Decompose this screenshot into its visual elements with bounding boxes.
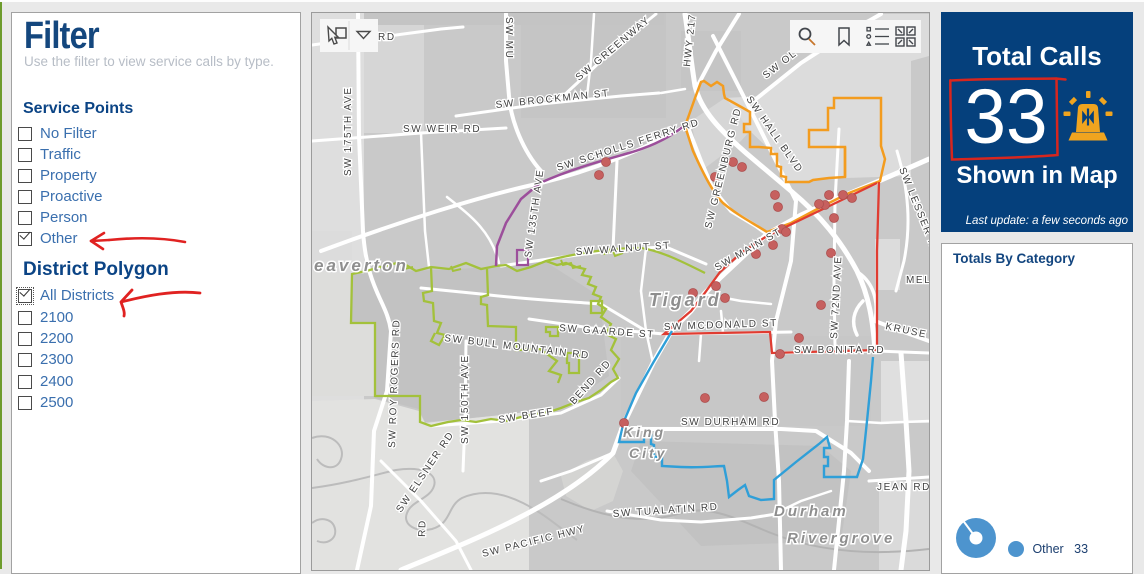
svg-text:King: King	[623, 424, 666, 440]
svg-text:RD: RD	[417, 519, 429, 537]
svg-text:SW MU: SW MU	[503, 17, 514, 59]
svg-text:City: City	[629, 445, 667, 461]
svg-text:SW WEIR RD: SW WEIR RD	[403, 124, 481, 135]
svg-text:RD: RD	[378, 32, 396, 43]
svg-text:Rivergrove: Rivergrove	[787, 530, 895, 547]
svg-text:SW 175TH AVE: SW 175TH AVE	[343, 86, 354, 176]
svg-text:SW BONITA RD: SW BONITA RD	[794, 345, 885, 356]
svg-text:SW DURHAM RD: SW DURHAM RD	[681, 417, 780, 428]
svg-text:SW 150TH AVE: SW 150TH AVE	[460, 354, 471, 444]
svg-text:JEAN RD: JEAN RD	[877, 482, 930, 493]
svg-text:eaverton: eaverton	[314, 256, 409, 275]
svg-text:Tigard: Tigard	[649, 290, 722, 310]
svg-text:MEL: MEL	[906, 275, 930, 286]
svg-text:Durham: Durham	[774, 503, 849, 520]
